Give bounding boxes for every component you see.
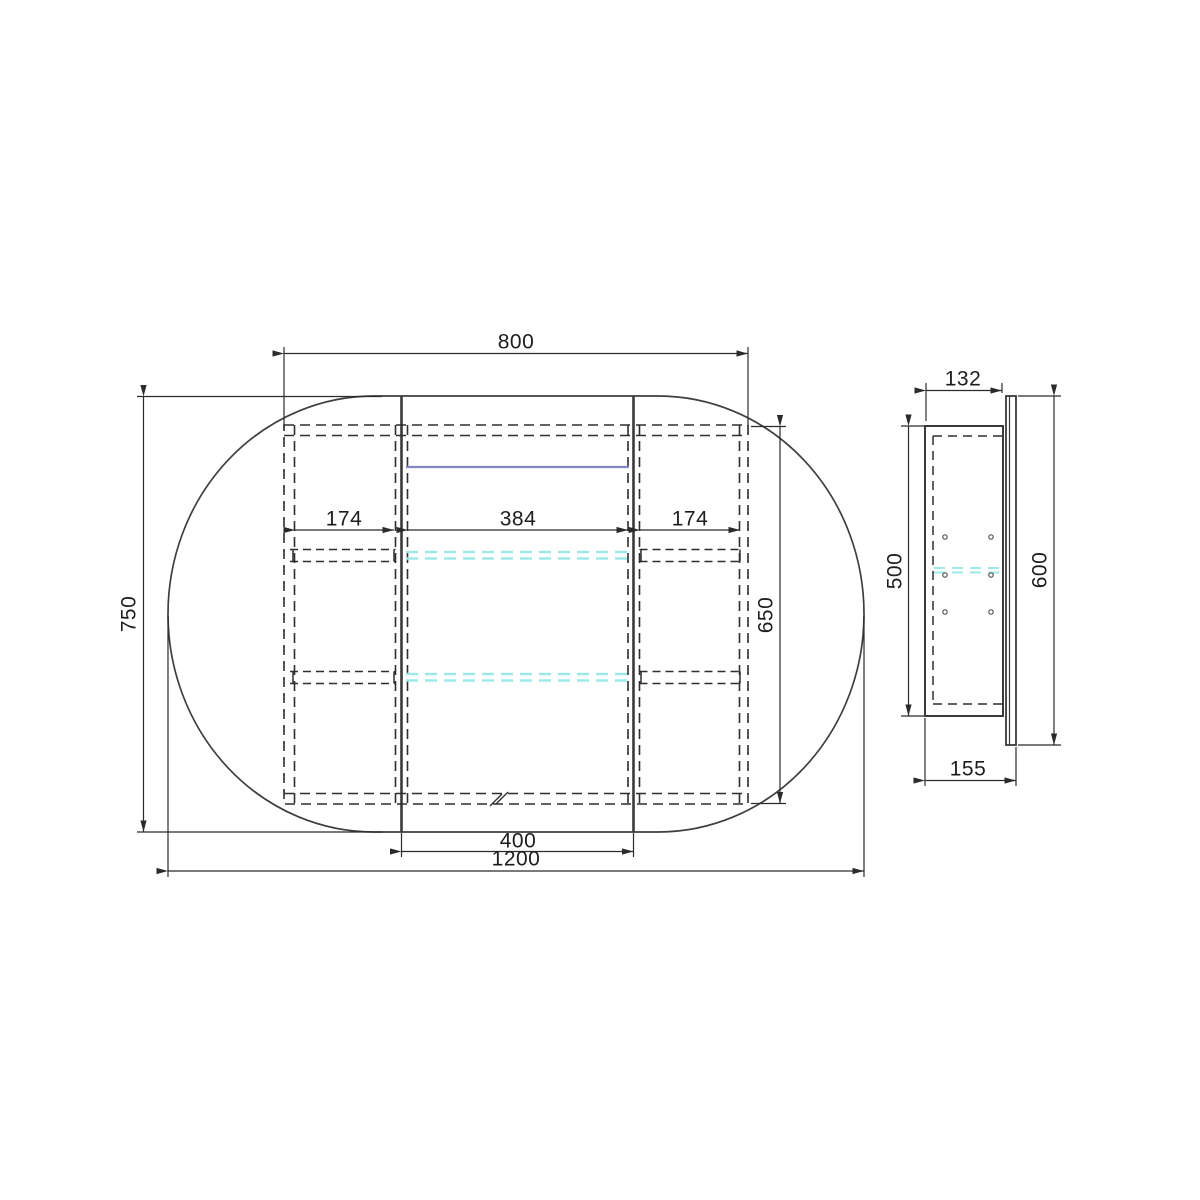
mirror-door-side: [1006, 396, 1016, 745]
cabinet-drawing: [0, 0, 1200, 1200]
dim-front-cabinet-height: 650: [756, 597, 777, 634]
carcass-outer-box: [284, 425, 748, 804]
dim-front-right-compartment: 174: [672, 509, 709, 530]
cabinet-carcass-hidden-lines: [284, 425, 748, 804]
dim-front-mirror-width: 1200: [492, 849, 541, 870]
shelf-pin-holes: [943, 535, 993, 614]
dim-front-center-compartment: 384: [500, 509, 537, 530]
side-hidden-lines: [933, 436, 1003, 704]
dim-front-left-compartment: 174: [326, 509, 363, 530]
dim-side-door-height: 600: [1030, 552, 1051, 589]
glass-shelf-side: [934, 568, 1003, 573]
glass-shelves: [406, 552, 629, 681]
dim-side-overall-depth: 155: [950, 759, 987, 780]
dim-front-cabinet-width: 800: [498, 332, 535, 353]
side-shelves-hidden: [290, 550, 743, 684]
dim-front-mirror-height: 750: [119, 596, 140, 633]
dim-side-body-height: 500: [885, 553, 906, 590]
dim-side-cabinet-depth: 132: [945, 369, 982, 390]
technical-drawing-page: 800 750 650 174 384 174 400 1200 132 500…: [0, 0, 1200, 1200]
cabinet-body-side: [925, 426, 1003, 716]
